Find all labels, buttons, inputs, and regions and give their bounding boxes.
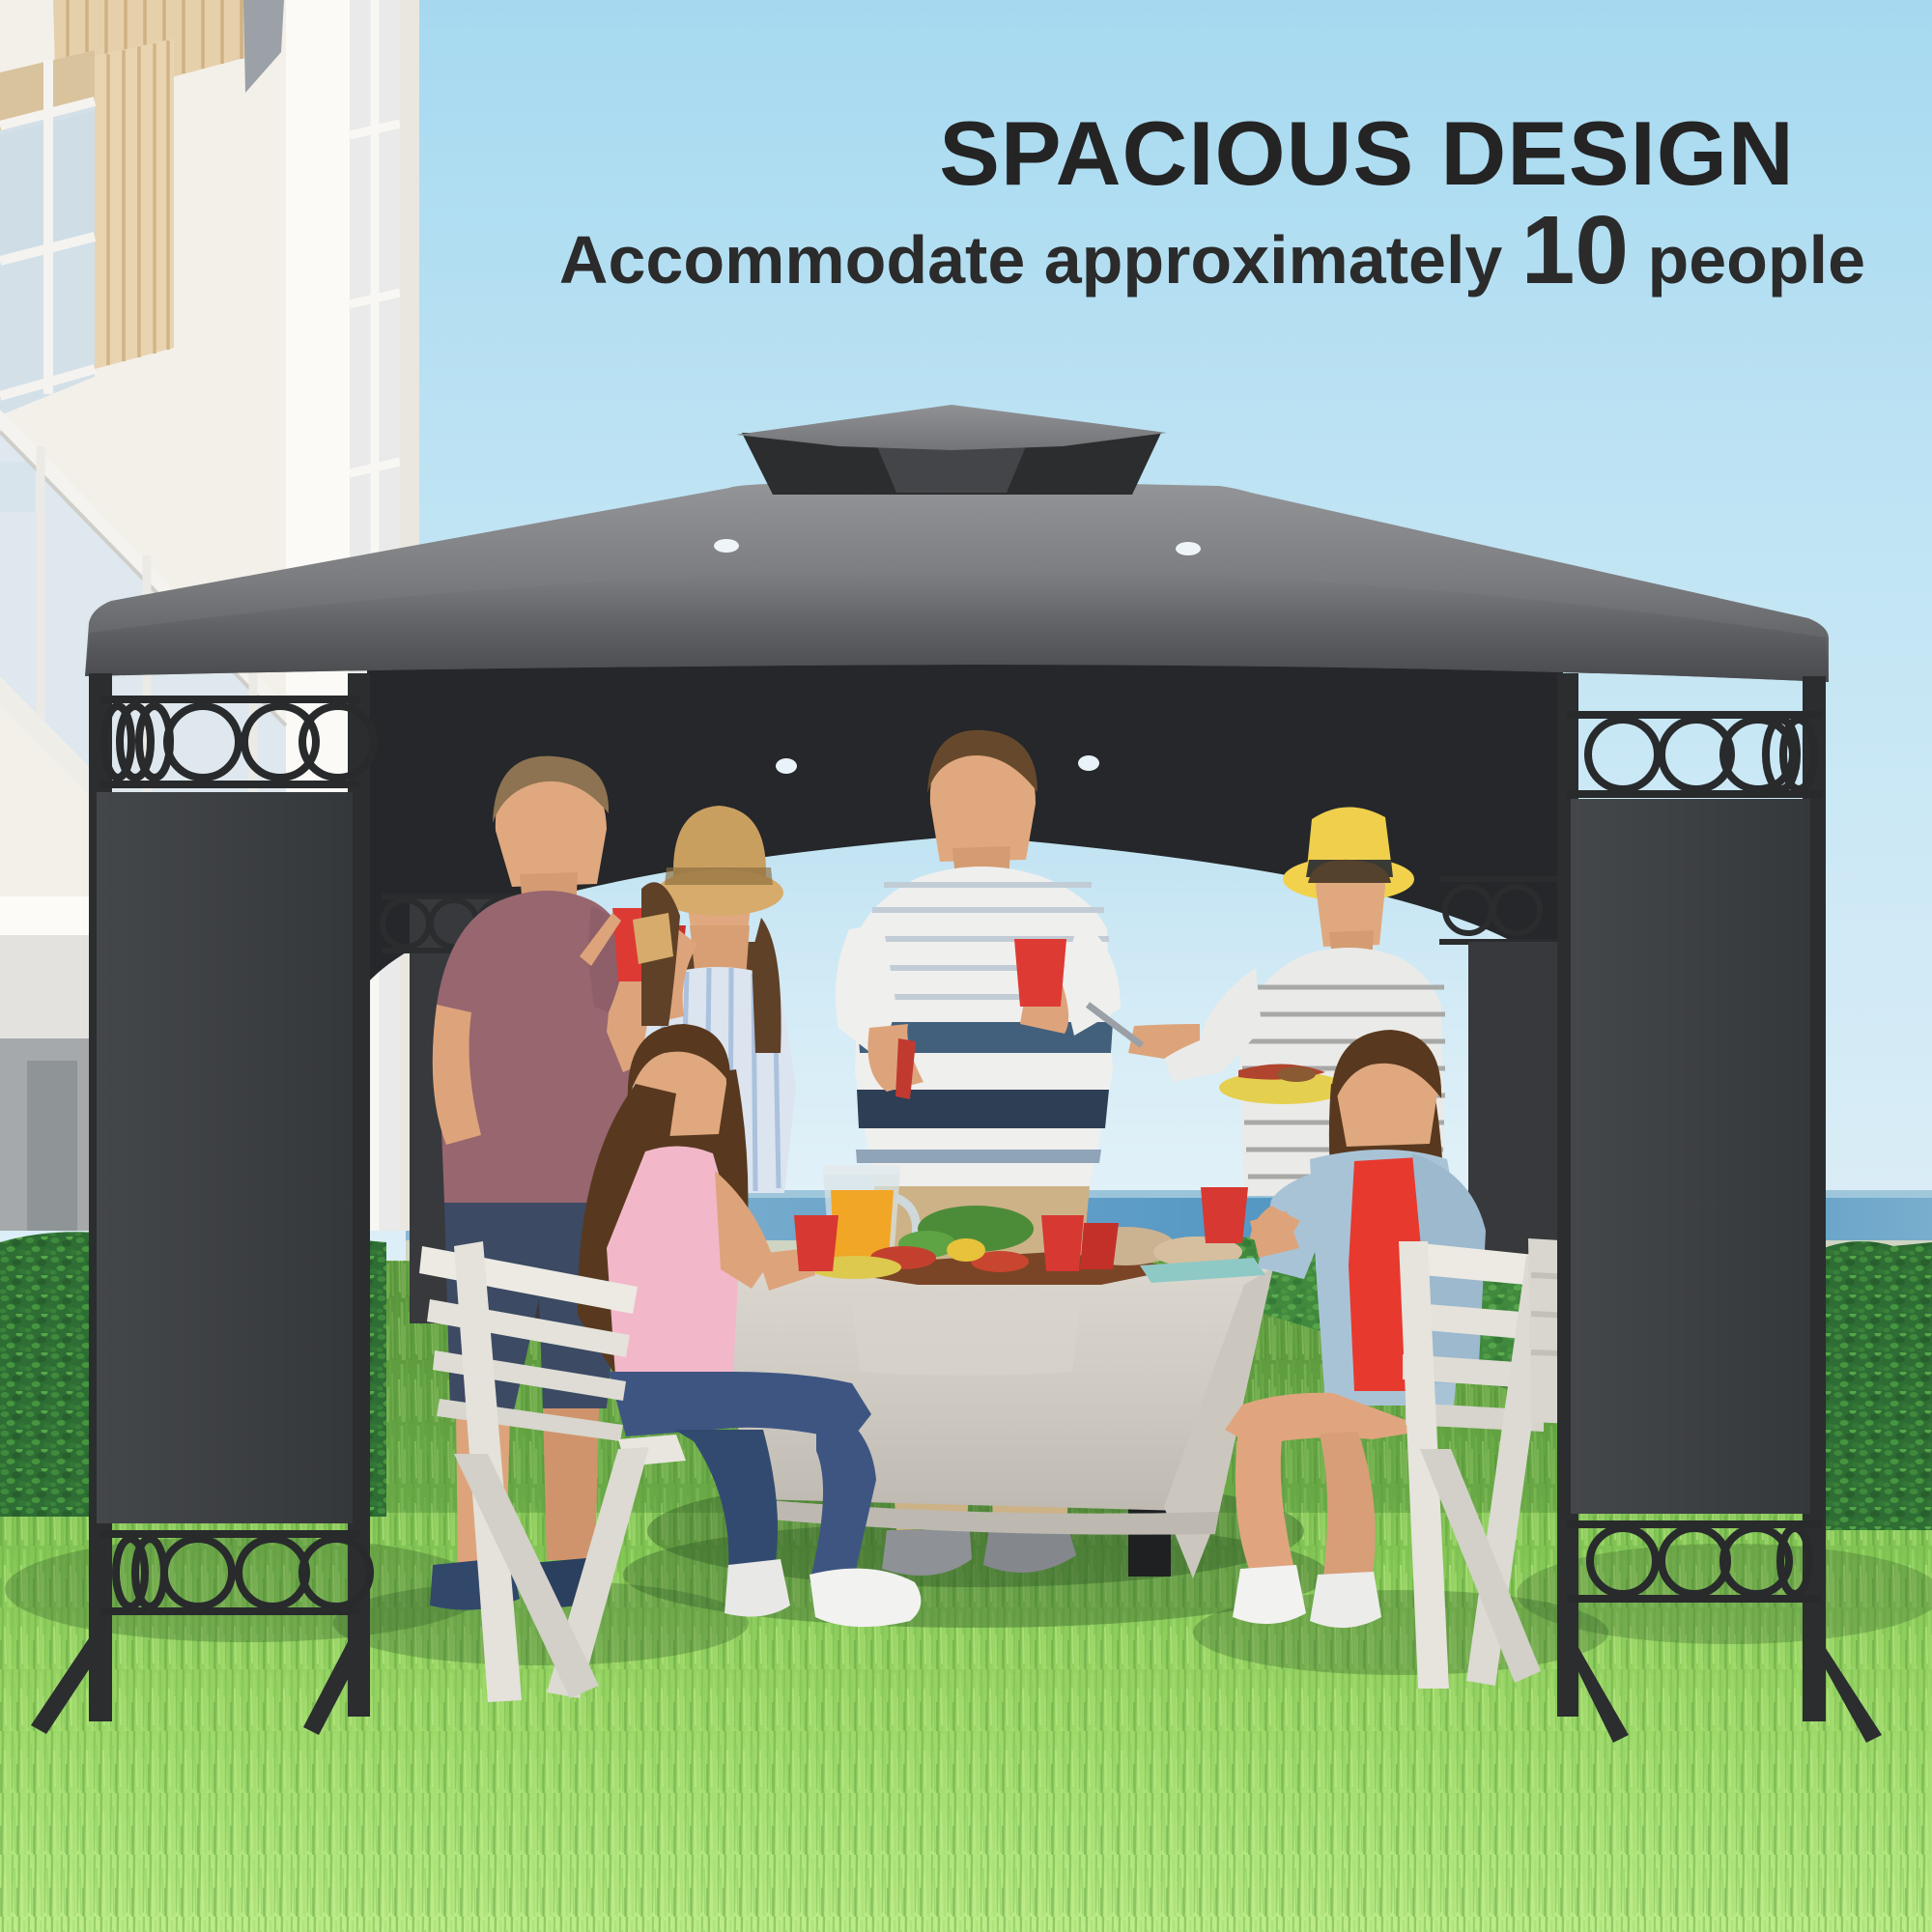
svg-text:SPACIOUS DESIGN: SPACIOUS DESIGN [939,102,1795,204]
